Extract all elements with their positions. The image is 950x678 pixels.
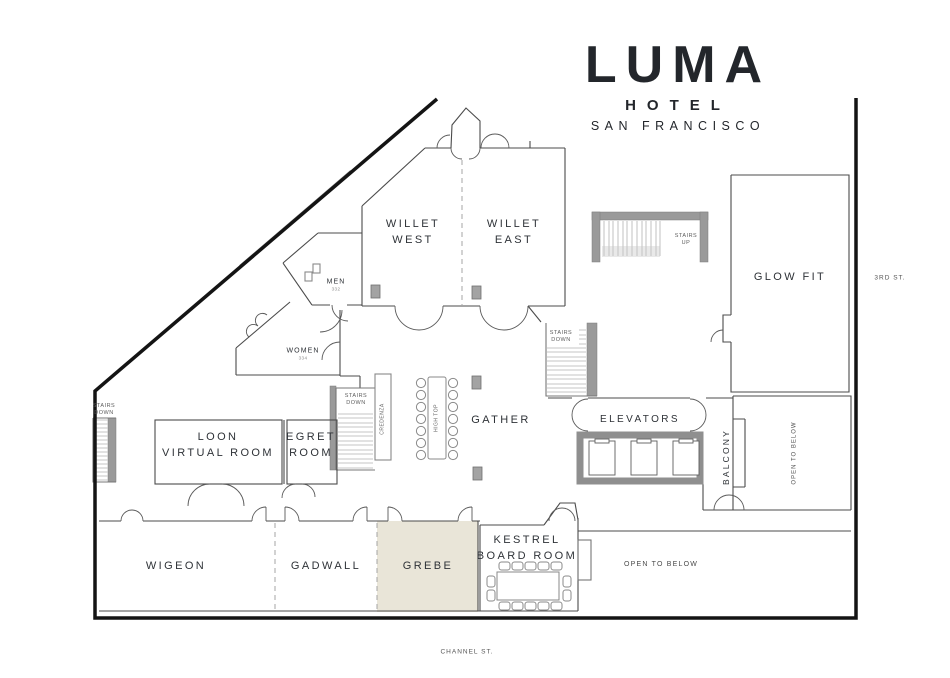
willet-west-line1: WILLET (386, 217, 440, 233)
willet-west-line2: WEST (386, 233, 440, 249)
room-label-women: WOMEN 334 (286, 346, 319, 361)
stairs-down-line2: DOWN (550, 337, 572, 344)
room-label-loon: LOON VIRTUAL ROOM (162, 430, 274, 462)
area-label-elevators: ELEVATORS (600, 413, 680, 428)
logo-hotel: HOTEL (508, 97, 848, 114)
willet-east-line1: WILLET (487, 217, 541, 233)
women-room-number: 334 (286, 357, 319, 362)
loon-line1: LOON (162, 430, 274, 446)
elevator-shaft (580, 435, 700, 481)
street-label-channel: CHANNEL ST. (440, 647, 493, 656)
street-label-3rd: 3RD ST. (874, 273, 905, 282)
egret-line1: EGRET (286, 430, 336, 446)
willet-east-line2: EAST (487, 233, 541, 249)
elevator-cars (589, 439, 699, 475)
room-label-men: MEN 332 (327, 277, 346, 292)
logo-luma: LUMA (508, 38, 848, 93)
room-label-egret: EGRET ROOM (286, 430, 336, 462)
stairs-up-line2: UP (675, 240, 697, 247)
stairs-down-line2: DOWN (345, 400, 367, 407)
women-label: WOMEN (286, 347, 319, 354)
area-label-gather: GATHER (471, 413, 530, 429)
open-to-below-bottom-label: OPEN TO BELOW (624, 560, 698, 570)
stairs-down-line1: STAIRS (93, 403, 115, 410)
logo-city: SAN FRANCISCO (508, 119, 848, 133)
room-label-grebe: GREBE (403, 559, 454, 575)
stairs-down-right-label: STAIRS DOWN (550, 330, 572, 344)
men-room-number: 332 (327, 288, 346, 293)
high-top-label: HIGH TOP (433, 404, 440, 432)
columns (371, 285, 482, 480)
egret-line2: ROOM (286, 446, 336, 462)
room-label-willet-west: WILLET WEST (386, 217, 440, 249)
loon-line2: VIRTUAL ROOM (162, 446, 274, 462)
boardroom-table (487, 562, 571, 610)
stairs-up-label: STAIRS UP (675, 233, 697, 247)
room-label-gadwall: GADWALL (291, 559, 361, 575)
credenza-label: CREDENZA (379, 403, 386, 435)
floor-plan: LUMA HOTEL SAN FRANCISCO WILLET WEST WIL… (0, 0, 950, 678)
stairs-down-left-label: STAIRS DOWN (93, 403, 115, 417)
room-label-wigeon: WIGEON (146, 559, 206, 575)
stairs-down-center-label: STAIRS DOWN (345, 393, 367, 407)
stairs-up-line1: STAIRS (675, 233, 697, 240)
stairs-down-line2: DOWN (93, 410, 115, 417)
kestrel-line2: BOARD ROOM (477, 549, 577, 565)
balcony-label: BALCONY (720, 429, 732, 485)
kestrel-line1: KESTREL (477, 533, 577, 549)
open-to-below-right-label: OPEN TO BELOW (791, 421, 800, 484)
room-label-glow-fit: GLOW FIT (754, 270, 826, 286)
room-label-willet-east: WILLET EAST (487, 217, 541, 249)
room-label-kestrel: KESTREL BOARD ROOM (477, 533, 577, 565)
stairs-down-line1: STAIRS (345, 393, 367, 400)
stairs-down-line1: STAIRS (550, 330, 572, 337)
men-label: MEN (327, 278, 346, 285)
